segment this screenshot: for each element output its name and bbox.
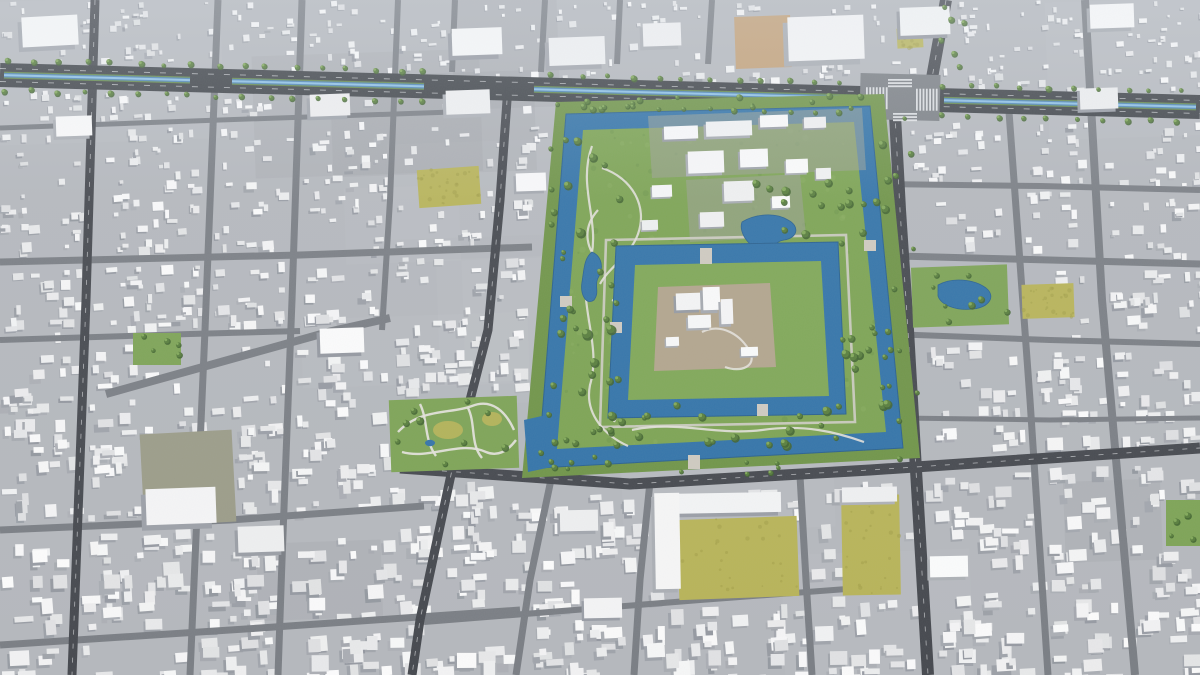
city-aerial-render (0, 0, 1200, 675)
city-3d-model-scene (0, 0, 1200, 675)
atmospheric-haze-overlay (0, 0, 1200, 675)
